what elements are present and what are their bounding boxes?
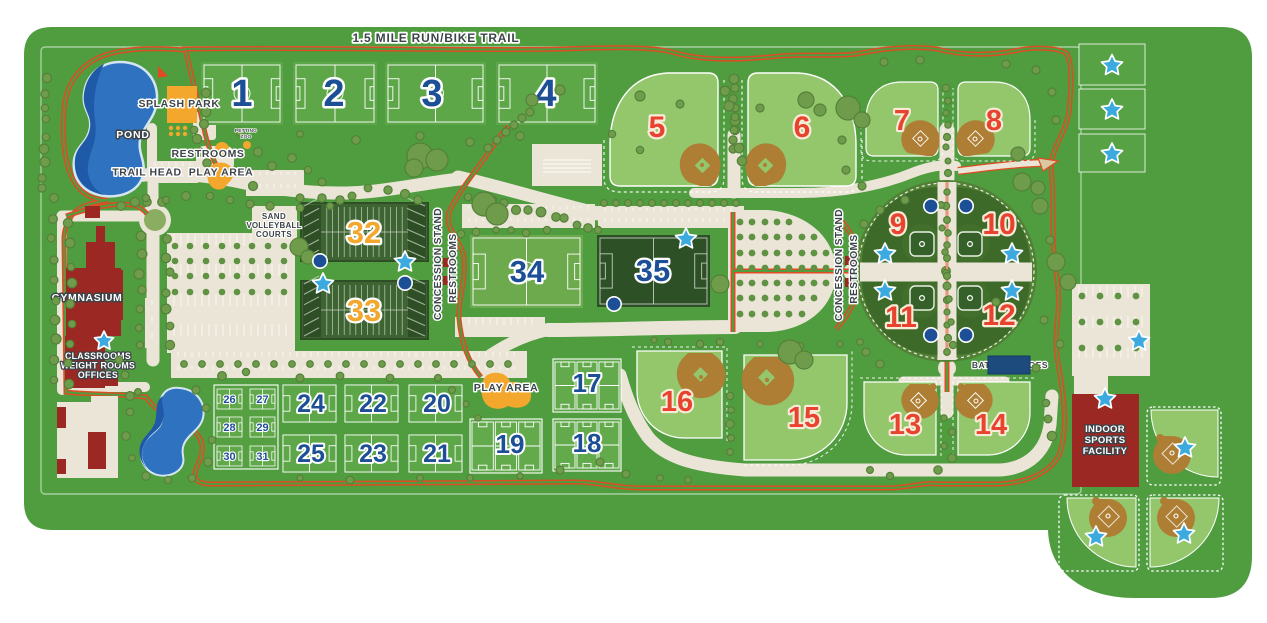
- svg-text:15: 15: [788, 402, 820, 434]
- svg-text:RESTROOMS: RESTROOMS: [849, 234, 860, 303]
- svg-text:9: 9: [890, 208, 907, 241]
- svg-text:17: 17: [573, 368, 602, 398]
- svg-text:18: 18: [573, 428, 602, 458]
- svg-text:26: 26: [223, 394, 235, 406]
- svg-text:21: 21: [423, 440, 451, 468]
- svg-text:34: 34: [510, 254, 545, 289]
- svg-text:OFFICES: OFFICES: [78, 370, 118, 380]
- svg-text:7: 7: [894, 105, 910, 137]
- svg-text:20: 20: [423, 390, 451, 418]
- svg-text:14: 14: [975, 409, 1007, 441]
- svg-text:25: 25: [297, 440, 325, 468]
- svg-text:SPLASH PARK: SPLASH PARK: [138, 98, 219, 110]
- svg-text:ZOO: ZOO: [241, 134, 252, 140]
- svg-text:28: 28: [223, 422, 235, 434]
- svg-text:16: 16: [661, 386, 693, 418]
- svg-text:2: 2: [323, 73, 344, 115]
- svg-text:GYMNASIUM: GYMNASIUM: [52, 292, 123, 304]
- svg-text:23: 23: [359, 440, 387, 468]
- svg-text:POND: POND: [116, 129, 150, 141]
- svg-text:1.5 MILE RUN/BIKE TRAIL: 1.5 MILE RUN/BIKE TRAIL: [352, 31, 519, 45]
- svg-text:6: 6: [794, 111, 811, 144]
- svg-text:22: 22: [359, 390, 387, 418]
- svg-text:COURTS: COURTS: [256, 230, 292, 239]
- svg-text:4: 4: [535, 73, 556, 115]
- svg-text:3: 3: [421, 73, 442, 115]
- svg-text:1: 1: [231, 73, 252, 115]
- svg-text:VOLLEYBALL: VOLLEYBALL: [246, 221, 301, 230]
- svg-text:RESTROOMS: RESTROOMS: [448, 233, 459, 302]
- svg-text:31: 31: [256, 451, 268, 463]
- svg-text:24: 24: [297, 390, 325, 418]
- svg-text:30: 30: [223, 451, 235, 463]
- svg-text:13: 13: [889, 409, 921, 441]
- svg-text:29: 29: [256, 422, 268, 434]
- svg-text:35: 35: [636, 253, 670, 288]
- svg-text:11: 11: [885, 301, 917, 334]
- svg-text:TRAIL HEAD: TRAIL HEAD: [112, 167, 181, 179]
- svg-text:CONCESSION STAND: CONCESSION STAND: [834, 209, 845, 321]
- svg-text:CONCESSION STAND: CONCESSION STAND: [433, 208, 444, 320]
- svg-text:FACILITY: FACILITY: [1083, 446, 1128, 457]
- svg-text:5: 5: [649, 111, 666, 144]
- svg-text:33: 33: [347, 293, 381, 328]
- svg-text:INDOOR: INDOOR: [1085, 424, 1125, 435]
- svg-text:PLAY AREA: PLAY AREA: [189, 167, 254, 179]
- svg-text:19: 19: [496, 429, 525, 459]
- svg-text:PETTING: PETTING: [235, 128, 257, 134]
- svg-text:8: 8: [986, 105, 1002, 137]
- svg-text:RESTROOMS: RESTROOMS: [171, 148, 244, 160]
- svg-text:SPORTS: SPORTS: [1085, 435, 1126, 446]
- svg-text:PLAY AREA: PLAY AREA: [474, 382, 539, 394]
- svg-text:SAND: SAND: [262, 212, 286, 221]
- svg-text:10: 10: [982, 208, 1015, 241]
- svg-text:27: 27: [256, 394, 268, 406]
- svg-text:32: 32: [347, 215, 381, 250]
